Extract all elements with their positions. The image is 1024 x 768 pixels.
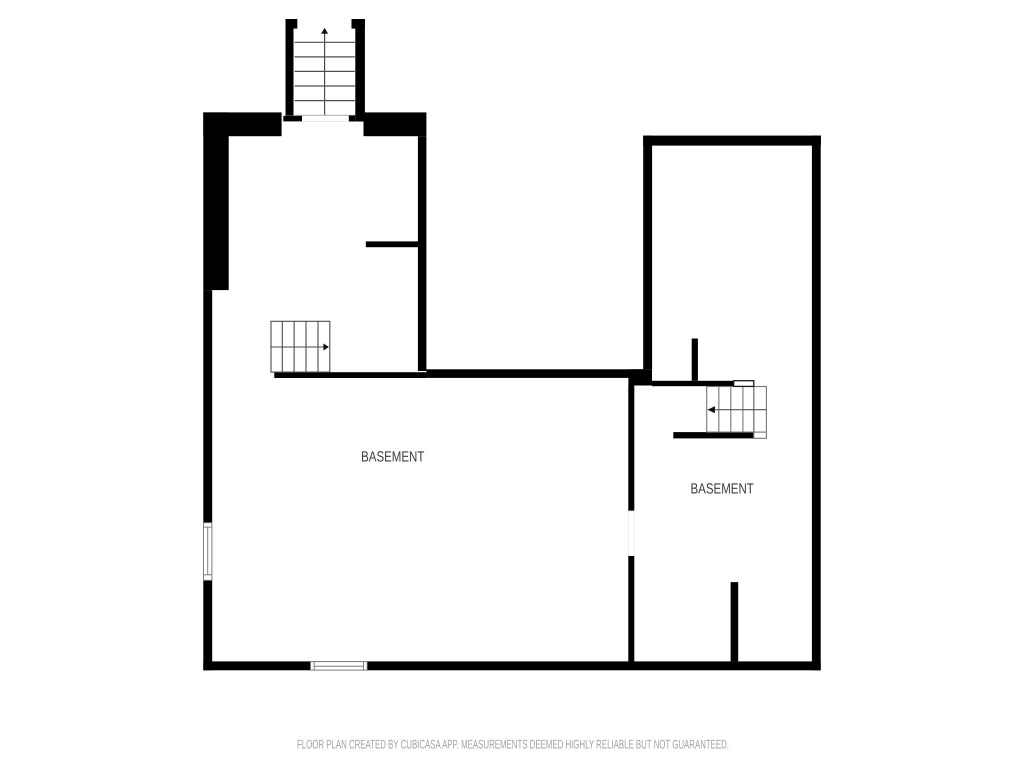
svg-text:FLOOR PLAN CREATED BY CUBICASA: FLOOR PLAN CREATED BY CUBICASA APP. MEAS…: [297, 737, 729, 751]
svg-text:BASEMENT: BASEMENT: [361, 450, 424, 466]
svg-text:BASEMENT: BASEMENT: [691, 482, 754, 498]
